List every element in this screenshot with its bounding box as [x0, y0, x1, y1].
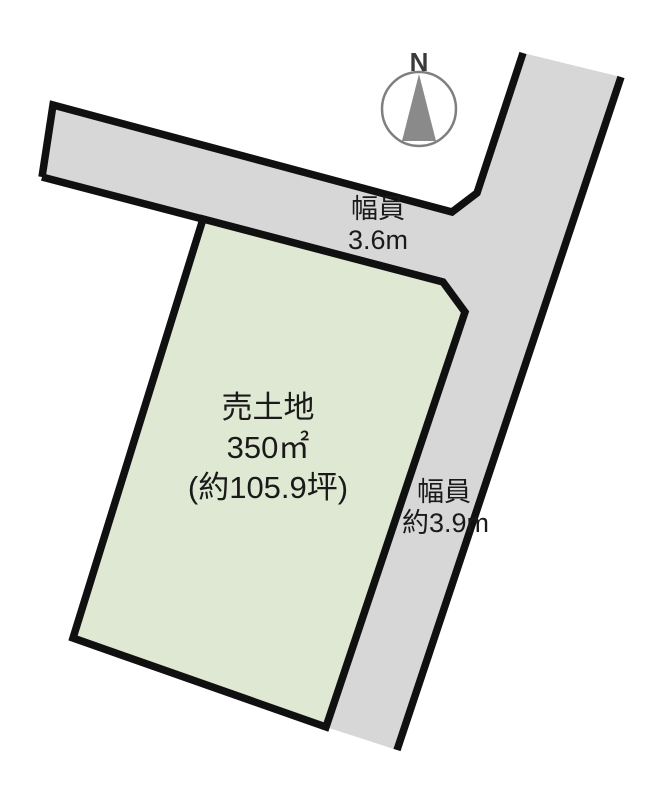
plot-caption: 売土地 350㎡ (約105.9坪)	[188, 388, 348, 508]
top-road-width-label-line1: 幅員	[348, 194, 408, 225]
plot-title: 売土地	[188, 388, 348, 428]
plot-area-tsubo: (約105.9坪)	[188, 468, 348, 508]
plot-area-sqm: 350㎡	[188, 428, 348, 468]
top-road-width-label-line2: 3.6m	[348, 225, 408, 256]
compass-needle-icon	[402, 74, 436, 141]
right-road-width-label-line1: 幅員	[417, 477, 471, 508]
land-plot-diagram: N 幅員 3.6m 幅員 約3.9m 売土地 350㎡ (約105.9坪)	[0, 0, 672, 800]
top-road-width-label: 幅員 3.6m	[348, 194, 408, 256]
compass-north-label: N	[410, 47, 429, 78]
right-road-width-label-line2: 約3.9m	[402, 508, 489, 539]
compass	[382, 72, 456, 146]
